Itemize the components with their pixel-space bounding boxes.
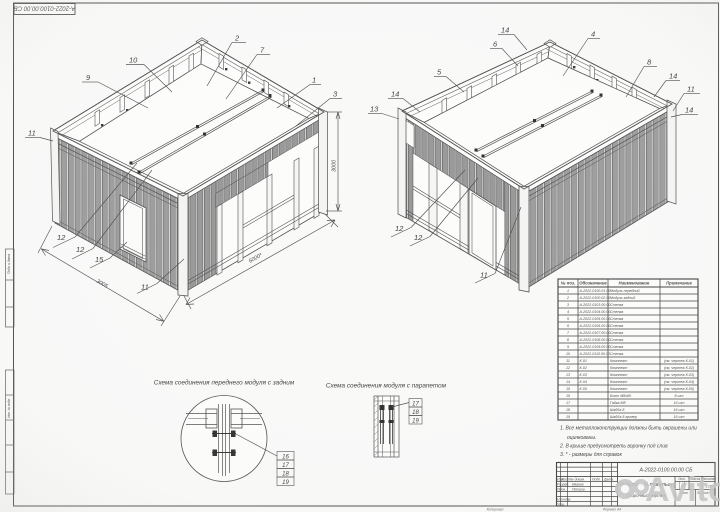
svg-text:К-04: К-04 (580, 380, 587, 384)
svg-text:11: 11 (28, 129, 36, 138)
svg-text:А-2022-0104.00.00: А-2022-0104.00.00 (579, 310, 611, 314)
svg-text:Комплект: Комплект (610, 359, 627, 363)
svg-text:14: 14 (501, 26, 509, 35)
svg-text:14: 14 (391, 90, 399, 99)
svg-text:1: 1 (567, 289, 569, 293)
svg-text:К-01: К-01 (580, 359, 587, 363)
svg-text:Модуль передний: Модуль передний (610, 289, 640, 293)
svg-text:11: 11 (687, 85, 695, 94)
svg-text:Пров.: Пров. (557, 487, 566, 491)
svg-text:16: 16 (566, 394, 570, 398)
svg-text:Стенка: Стенка (610, 303, 623, 307)
svg-text:18: 18 (412, 410, 419, 416)
svg-text:2. В крыше предусмотреть ворон: 2. В крыше предусмотреть воронку под сли… (559, 444, 668, 450)
svg-text:(см. чертеж К-02): (см. чертеж К-02) (664, 366, 694, 370)
svg-text:12: 12 (76, 245, 85, 254)
svg-text:Подп. и дата: Подп. и дата (7, 254, 11, 274)
svg-text:оцинкованы.: оцинкованы. (567, 435, 596, 441)
svg-text:Схема соединения переднего мод: Схема соединения переднего модуля с задн… (154, 379, 295, 387)
svg-text:14: 14 (685, 106, 693, 115)
svg-text:5: 5 (567, 317, 569, 321)
svg-text:Наименование: Наименование (619, 281, 650, 286)
svg-text:Шайба 8: Шайба 8 (610, 408, 624, 412)
svg-text:№ поз.: № поз. (561, 281, 575, 286)
svg-text:18: 18 (282, 471, 289, 477)
svg-text:12: 12 (57, 233, 66, 242)
svg-text:14: 14 (566, 380, 570, 384)
svg-text:13: 13 (370, 105, 379, 114)
svg-text:Стенка: Стенка (610, 324, 623, 328)
svg-text:12: 12 (395, 224, 404, 233)
svg-text:Стенка: Стенка (610, 331, 623, 335)
svg-text:Подп.: Подп. (592, 477, 601, 481)
svg-text:3. * - размеры для справок: 3. * - размеры для справок (560, 452, 622, 458)
svg-text:6: 6 (567, 324, 569, 328)
svg-text:А-2022-0109.00.00: А-2022-0109.00.00 (579, 345, 611, 349)
svg-text:А-2022-0105.00.00: А-2022-0105.00.00 (579, 317, 611, 321)
svg-text:(см. чертеж К-05): (см. чертеж К-05) (664, 387, 694, 391)
svg-text:9: 9 (567, 345, 569, 349)
svg-text:Формат А4: Формат А4 (603, 507, 622, 511)
svg-text:15: 15 (566, 387, 570, 391)
svg-text:Стенка: Стенка (610, 317, 623, 321)
svg-text:А-2022-0107.00.00: А-2022-0107.00.00 (579, 331, 611, 335)
svg-text:11: 11 (480, 271, 488, 280)
svg-text:Болт М8х80: Болт М8х80 (610, 394, 631, 398)
svg-text:(см. чертеж К-03): (см. чертеж К-03) (664, 373, 694, 377)
svg-text:4: 4 (591, 30, 595, 39)
svg-text:11: 11 (566, 359, 570, 363)
svg-text:Комплект: Комплект (610, 380, 627, 384)
svg-text:Avito: Avito (645, 471, 720, 509)
svg-text:Гайка М8: Гайка М8 (610, 401, 626, 405)
svg-text:(см. чертеж К-01): (см. чертеж К-01) (664, 359, 694, 363)
svg-text:Разраб.: Разраб. (557, 482, 569, 486)
svg-text:3: 3 (567, 303, 569, 307)
svg-text:Копировал: Копировал (487, 507, 504, 511)
svg-text:Инв. № подл.: Инв. № подл. (7, 398, 11, 418)
svg-text:2: 2 (566, 296, 569, 300)
svg-text:10: 10 (129, 56, 138, 65)
svg-text:13: 13 (566, 373, 570, 377)
svg-text:19: 19 (412, 418, 419, 424)
svg-text:17: 17 (412, 401, 419, 407)
svg-text:Схема соединения модуля с пара: Схема соединения модуля с парапетом (326, 382, 447, 390)
svg-text:А-2022-0100.02.00: А-2022-0100.02.00 (579, 296, 611, 300)
svg-text:16 шт: 16 шт (674, 408, 685, 412)
svg-text:16: 16 (282, 454, 289, 460)
svg-text:16 шт: 16 шт (674, 401, 685, 405)
svg-text:8 шт: 8 шт (675, 394, 684, 398)
svg-text:2: 2 (234, 34, 240, 43)
svg-text:К-03: К-03 (580, 373, 587, 377)
svg-text:18: 18 (566, 408, 570, 412)
svg-text:12: 12 (414, 233, 423, 242)
svg-text:19: 19 (282, 480, 289, 486)
svg-text:15: 15 (95, 255, 104, 264)
svg-text:19: 19 (566, 415, 570, 419)
svg-text:16 шт: 16 шт (674, 415, 685, 419)
svg-text:А-2022-0100.00.00 СБ: А-2022-0100.00.00 СБ (14, 5, 76, 11)
svg-text:Иванов: Иванов (572, 482, 584, 486)
svg-text:11: 11 (141, 283, 149, 292)
svg-text:14: 14 (669, 72, 677, 81)
svg-text:12: 12 (566, 366, 570, 370)
svg-text:А-2022-0100.01.00: А-2022-0100.01.00 (579, 289, 611, 293)
svg-text:(см. чертеж К-04): (см. чертеж К-04) (664, 380, 694, 384)
svg-text:Модуль задний: Модуль задний (610, 296, 635, 300)
svg-text:Комплект: Комплект (610, 373, 627, 377)
svg-text:К-02: К-02 (580, 366, 587, 370)
svg-text:А-2022-0110.00.00: А-2022-0110.00.00 (579, 352, 611, 356)
svg-text:Н.контр.: Н.контр. (557, 497, 571, 501)
svg-text:3000: 3000 (332, 159, 338, 172)
svg-text:Стенка: Стенка (610, 345, 623, 349)
svg-text:Утв.: Утв. (557, 502, 565, 506)
svg-text:4: 4 (567, 310, 569, 314)
svg-text:Стенка: Стенка (610, 338, 623, 342)
svg-text:Дата: Дата (603, 477, 613, 481)
svg-text:Стенка: Стенка (610, 352, 623, 356)
svg-text:8: 8 (567, 338, 569, 342)
svg-text:17: 17 (282, 463, 289, 469)
svg-text:№ докум.: № докум. (570, 477, 585, 481)
svg-text:А-2022-0103.00.00: А-2022-0103.00.00 (579, 303, 611, 307)
svg-text:Стенка: Стенка (610, 310, 623, 314)
svg-text:Лист: Лист (561, 477, 571, 481)
svg-text:Комплект: Комплект (610, 387, 627, 391)
svg-text:А-2022-0108.00.00: А-2022-0108.00.00 (579, 338, 611, 342)
svg-text:Примечание: Примечание (666, 281, 692, 286)
svg-text:1: 1 (312, 76, 316, 85)
svg-text:К-05: К-05 (580, 387, 587, 391)
svg-text:10: 10 (566, 352, 570, 356)
svg-text:А-2022-0106.00.00: А-2022-0106.00.00 (579, 324, 611, 328)
svg-text:Комплект: Комплект (610, 366, 627, 370)
svg-text:1. Все металлоконструкции долж: 1. Все металлоконструкции должны быть ок… (560, 426, 697, 432)
svg-text:Петров: Петров (572, 487, 585, 491)
svg-text:Обозначение: Обозначение (579, 281, 607, 286)
svg-text:Шайба 8 гровер: Шайба 8 гровер (610, 415, 637, 419)
